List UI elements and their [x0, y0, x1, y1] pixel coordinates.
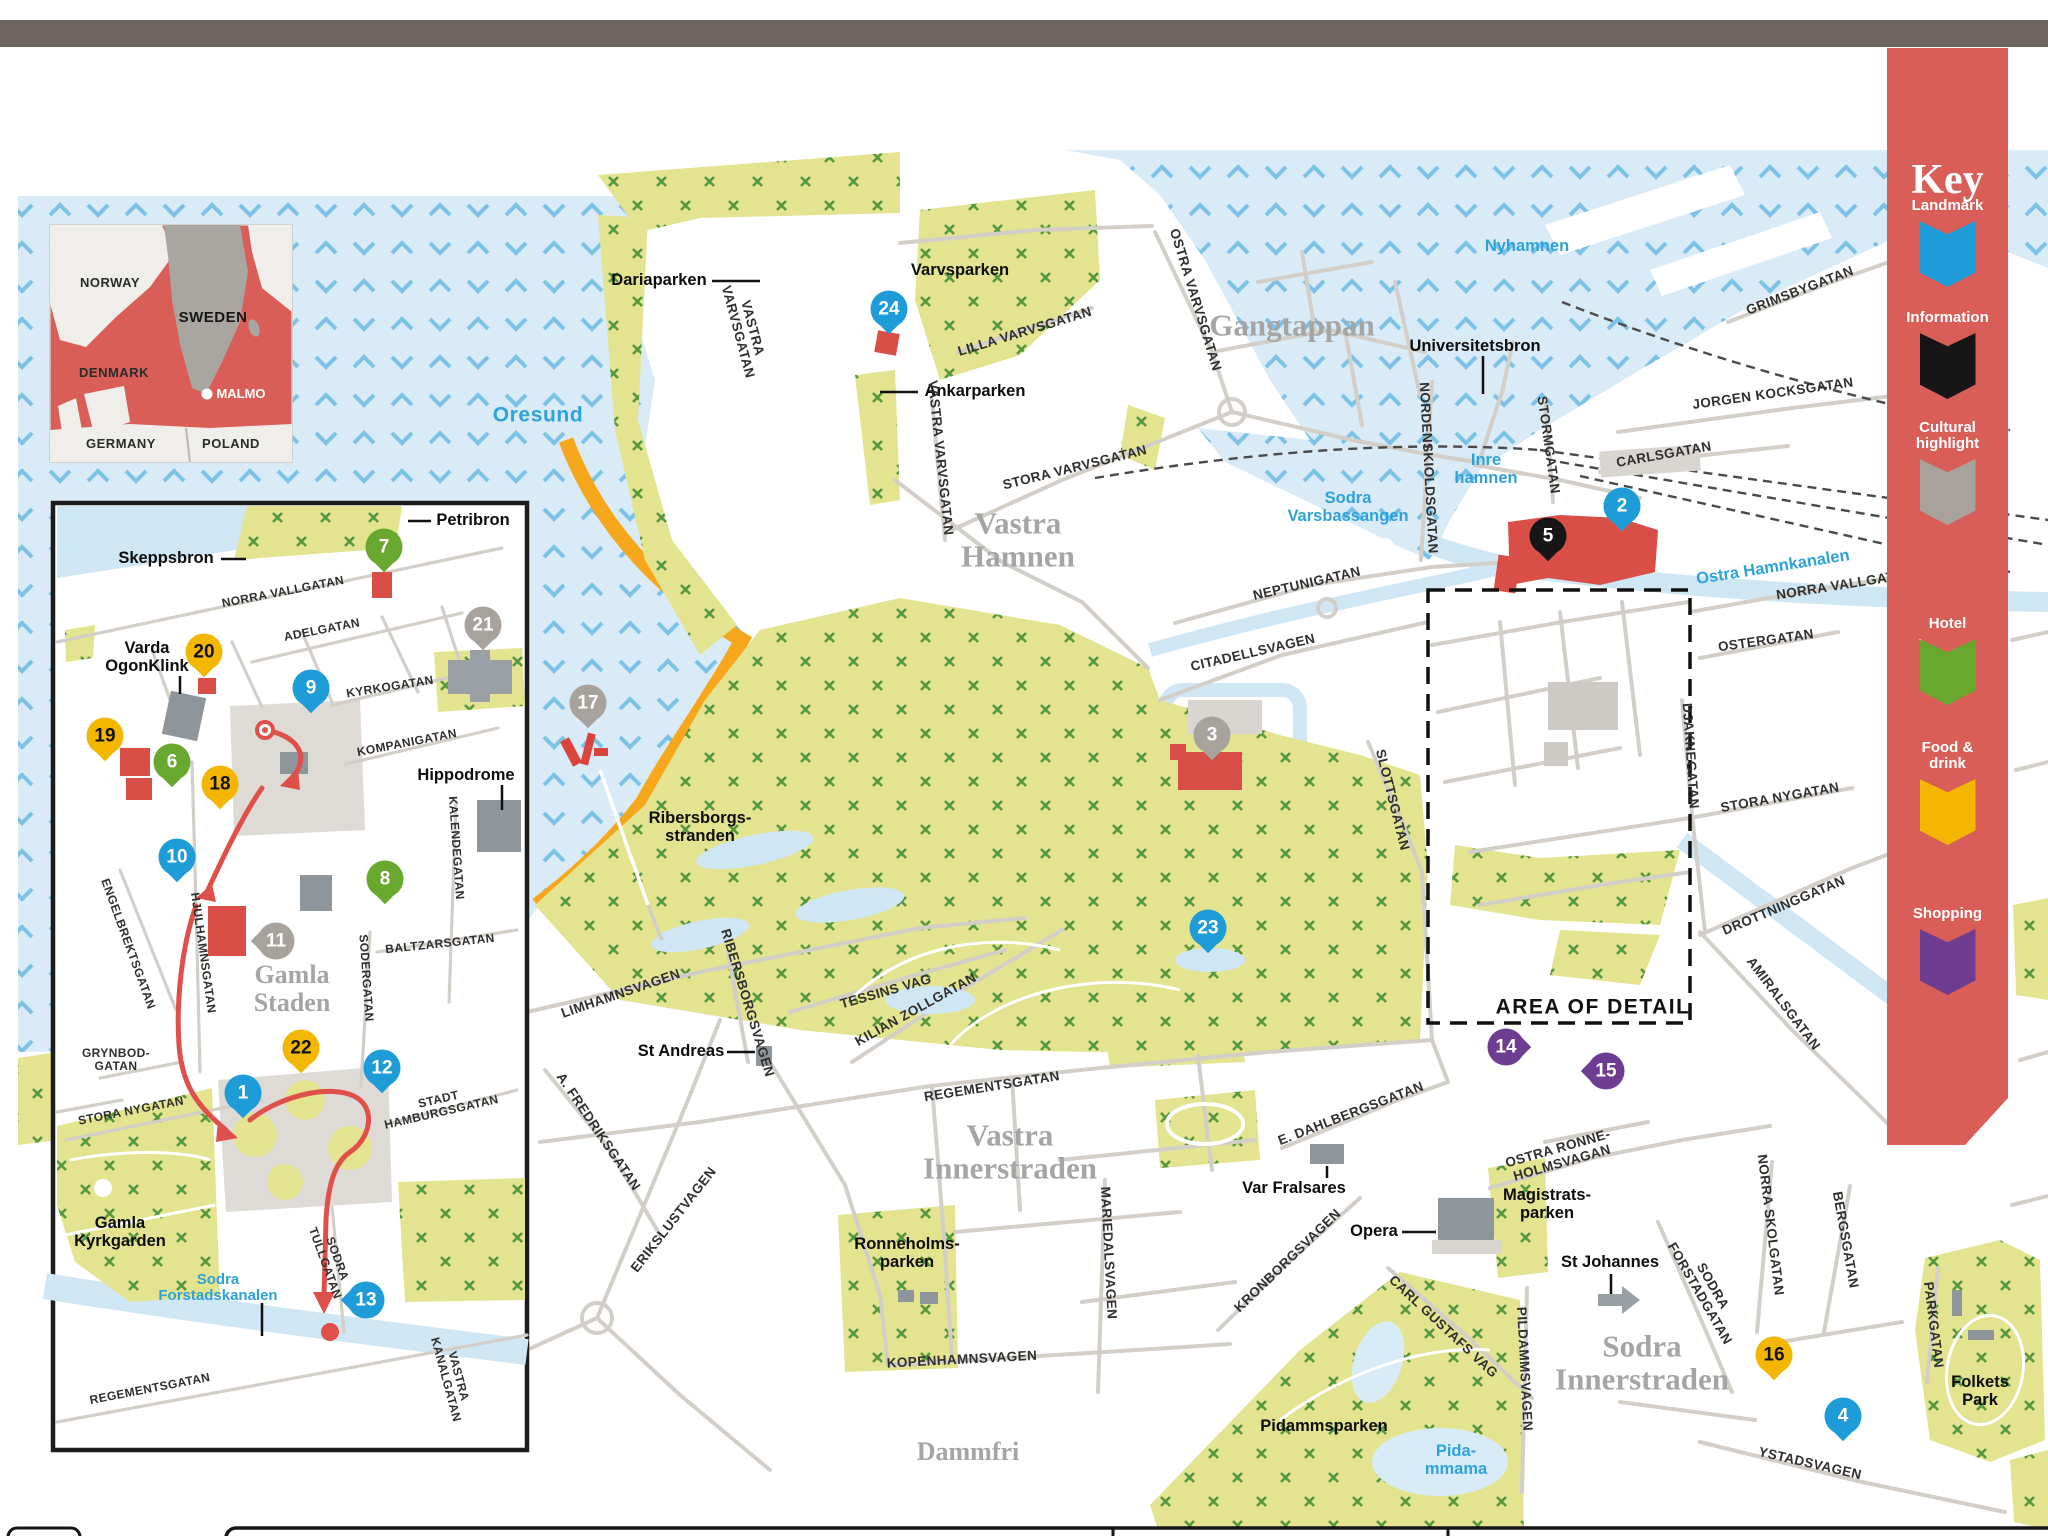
label-sodra-varsbassangen: Sodra Varsbassangen	[1287, 490, 1408, 526]
museum-icon	[1920, 459, 1976, 525]
label-petribron: Petribron	[436, 512, 509, 530]
marker-2-landmark: 2	[1604, 488, 1641, 525]
marker-number: 21	[472, 614, 493, 636]
label-sodra-forstadskanalen: Sodra Forstadskanalen	[158, 1272, 277, 1304]
marker-number: 11	[266, 930, 286, 952]
marker-17-cultural: 17	[570, 685, 607, 722]
marker-number: 24	[878, 298, 899, 320]
key-item-label: Food & drink	[1887, 740, 2008, 772]
route-end-dot	[321, 1323, 339, 1341]
label-varda-ogonklink: Varda OgonKlink	[105, 640, 188, 676]
marker-number: 7	[379, 536, 390, 558]
label-ronneholms-parken: Ronneholms- parken	[854, 1236, 959, 1272]
base-map	[0, 0, 2048, 1536]
label-pidammsparken: Pidammsparken	[1260, 1418, 1387, 1436]
marker-1-landmark: 1	[225, 1075, 262, 1112]
country-label-sweden: SWEDEN	[179, 310, 248, 326]
country-label-denmark: DENMARK	[79, 366, 149, 380]
bag-icon	[1920, 929, 1976, 995]
marker-5-information: 5	[1530, 518, 1567, 555]
label-st-johannes: St Johannes	[1561, 1254, 1659, 1272]
marker-number: 1	[238, 1082, 249, 1104]
label-opera: Opera	[1350, 1223, 1398, 1241]
key-item-shopping: Shopping	[1887, 906, 2008, 995]
country-inset-map	[50, 225, 292, 462]
marker-number: 2	[1617, 495, 1628, 517]
label-vastra-hamnen: Vastra Hamnen	[961, 507, 1075, 574]
label-gangtappan: Gangtappan	[1209, 308, 1374, 341]
top-bar	[0, 20, 2048, 47]
bed-icon	[1920, 639, 1976, 705]
marker-number: 6	[167, 751, 178, 773]
marker-number: 10	[166, 846, 187, 868]
marker-10-landmark: 10	[159, 839, 196, 876]
malmo-dot	[202, 389, 213, 400]
label-nyhamnen: Nyhamnen	[1485, 238, 1569, 256]
key-sidebar: Key LandmarkInformationiCultural highlig…	[1887, 48, 2008, 1145]
marker-19-food: 19	[87, 718, 124, 755]
marker-number: 9	[306, 677, 317, 699]
eye-icon	[1920, 221, 1976, 287]
country-label-poland: POLAND	[202, 437, 260, 451]
label-gamla-kyrkgarden: Gamla Kyrkgarden	[74, 1215, 166, 1251]
marker-number: 23	[1197, 917, 1218, 939]
key-item-food: Food & drink	[1887, 740, 2008, 845]
label-inre-hamnen: Inre hamnen	[1454, 452, 1517, 488]
country-label-norway: NORWAY	[80, 276, 140, 290]
marker-number: 13	[355, 1289, 376, 1311]
key-item-information: Informationi	[1887, 310, 2008, 399]
marker-number: 12	[371, 1057, 392, 1079]
country-label-germany: GERMANY	[86, 437, 156, 451]
marker-number: 14	[1495, 1036, 1516, 1058]
marker-number: 3	[1207, 724, 1218, 746]
label-magistrats-parken: Magistrats- parken	[1503, 1187, 1591, 1223]
label-var-fralsares: Var Fralsares	[1242, 1180, 1346, 1198]
key-item-label: Landmark	[1887, 198, 2008, 214]
marker-number: 4	[1838, 1405, 1849, 1427]
marker-15-shopping: 15	[1588, 1053, 1625, 1090]
label-grynbod-gatan: GRYNBOD- GATAN	[82, 1047, 150, 1073]
label-folkets-park: Folkets Park	[1951, 1374, 2009, 1410]
label-st-andreas: St Andreas	[638, 1043, 725, 1061]
label-dammfri: Dammfri	[917, 1438, 1020, 1466]
key-item-landmark: Landmark	[1887, 198, 2008, 287]
marker-20-food: 20	[186, 634, 223, 671]
marker-18-food: 18	[202, 766, 239, 803]
label-universitetsbron: Universitetsbron	[1409, 338, 1540, 356]
marker-23-landmark: 23	[1190, 910, 1227, 947]
marker-4-landmark: 4	[1825, 1398, 1862, 1435]
marker-22-food: 22	[283, 1030, 320, 1067]
marker-8-hotel: 8	[367, 861, 404, 898]
marker-11-cultural: 11	[258, 923, 295, 960]
key-item-hotel: Hotel	[1887, 616, 2008, 705]
marker-number: 22	[290, 1037, 311, 1059]
marker-number: 17	[577, 692, 598, 714]
marker-9-landmark: 9	[293, 670, 330, 707]
key-item-label: Shopping	[1887, 906, 2008, 922]
label-varvsparken: Varvsparken	[911, 262, 1009, 280]
label-vastra-innerstraden: Vastra Innerstraden	[923, 1119, 1097, 1186]
country-label-malmo: MALMO	[216, 387, 265, 401]
marker-number: 18	[209, 773, 230, 795]
marker-number: 15	[1595, 1060, 1616, 1082]
marker-7-hotel: 7	[366, 529, 403, 566]
marker-number: 5	[1543, 525, 1554, 547]
marker-number: 20	[193, 641, 214, 663]
label-pida-mmama: Pida- mmama	[1425, 1443, 1487, 1479]
marker-16-food: 16	[1756, 1337, 1793, 1374]
label-oresund: Oresund	[493, 405, 584, 428]
marker-24-landmark: 24	[871, 291, 908, 328]
marker-6-hotel: 6	[154, 744, 191, 781]
label-dariaparken: Dariaparken	[611, 272, 706, 290]
label-skeppsbron: Skeppsbron	[118, 550, 213, 568]
key-item-label: Hotel	[1887, 616, 2008, 632]
info-icon: i	[1920, 333, 1976, 399]
marker-number: 19	[94, 725, 115, 747]
label-area-of-detail: AREA OF DETAIL	[1496, 997, 1691, 1020]
marker-number: 16	[1763, 1344, 1784, 1366]
marker-12-landmark: 12	[364, 1050, 401, 1087]
marker-21-cultural: 21	[465, 607, 502, 644]
bottom-table	[8, 1528, 2048, 1536]
marker-14-shopping: 14	[1488, 1029, 1525, 1066]
st-johannes-arrow	[1598, 1286, 1640, 1314]
key-item-label: Information	[1887, 310, 2008, 326]
label-sodra-innerstraden: Sodra Innerstraden	[1555, 1330, 1729, 1397]
cutlery-icon	[1920, 779, 1976, 845]
marker-number: 8	[380, 868, 391, 890]
key-item-cultural: Cultural highlight	[1887, 420, 2008, 525]
map-page: OresundNyhamnenInre hamnenSodra Varsbass…	[0, 0, 2048, 1536]
key-item-label: Cultural highlight	[1887, 420, 2008, 452]
marker-13-landmark: 13	[348, 1282, 385, 1319]
marker-3-cultural: 3	[1194, 717, 1231, 754]
label-gamla-staden: Gamla Staden	[254, 961, 331, 1017]
label-hippodrome: Hippodrome	[417, 767, 514, 785]
label-ribersborgs-stranden: Ribersborgs- stranden	[649, 810, 752, 846]
